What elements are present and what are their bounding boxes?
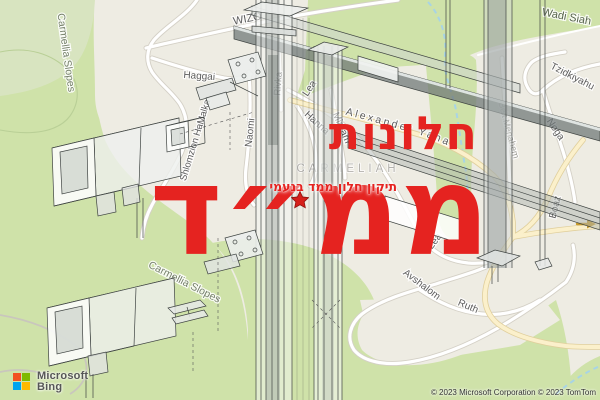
logo-text-bing: Bing — [37, 382, 88, 393]
overlay-title-line2: ממ״ד — [150, 150, 490, 274]
street-label-haggai: Haggai — [183, 70, 215, 83]
microsoft-logo-icon — [13, 373, 30, 390]
star-icon — [291, 191, 309, 209]
logo-square-green — [22, 373, 30, 381]
logo-square-red — [13, 373, 21, 381]
cad-box2-foot — [88, 352, 108, 376]
bing-logo[interactable]: Microsoft Bing — [13, 371, 88, 393]
overlay-subtitle: תיקון חלון ממד בנעמי — [269, 179, 397, 194]
logo-square-blue — [13, 382, 21, 390]
logo-square-yellow — [22, 382, 30, 390]
map-screenshot: WIZO Haggai Shlomzion HaMalka Naomi Rivk… — [0, 0, 600, 400]
copyright-attribution: © 2023 Microsoft Corporation © 2023 TomT… — [431, 388, 596, 397]
cad-box1-foot — [96, 192, 116, 216]
